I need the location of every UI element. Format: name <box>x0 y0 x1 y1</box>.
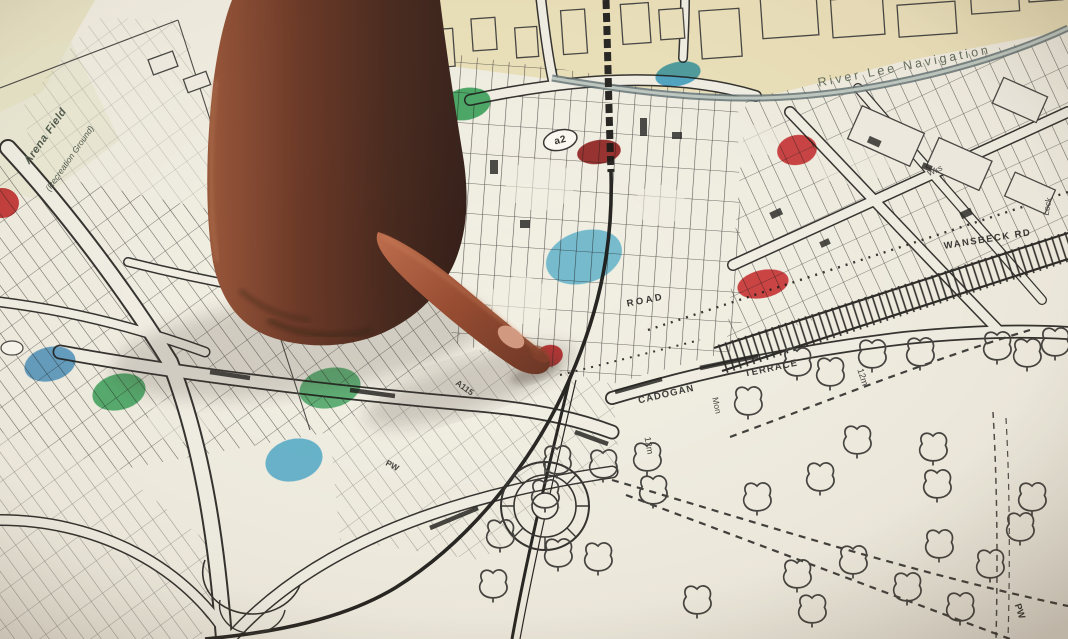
photo-canvas: Arena Field(Recreation Ground)River Lee … <box>0 0 1068 639</box>
vignette <box>0 0 1068 639</box>
map-photo: Arena Field(Recreation Ground)River Lee … <box>0 0 1068 639</box>
